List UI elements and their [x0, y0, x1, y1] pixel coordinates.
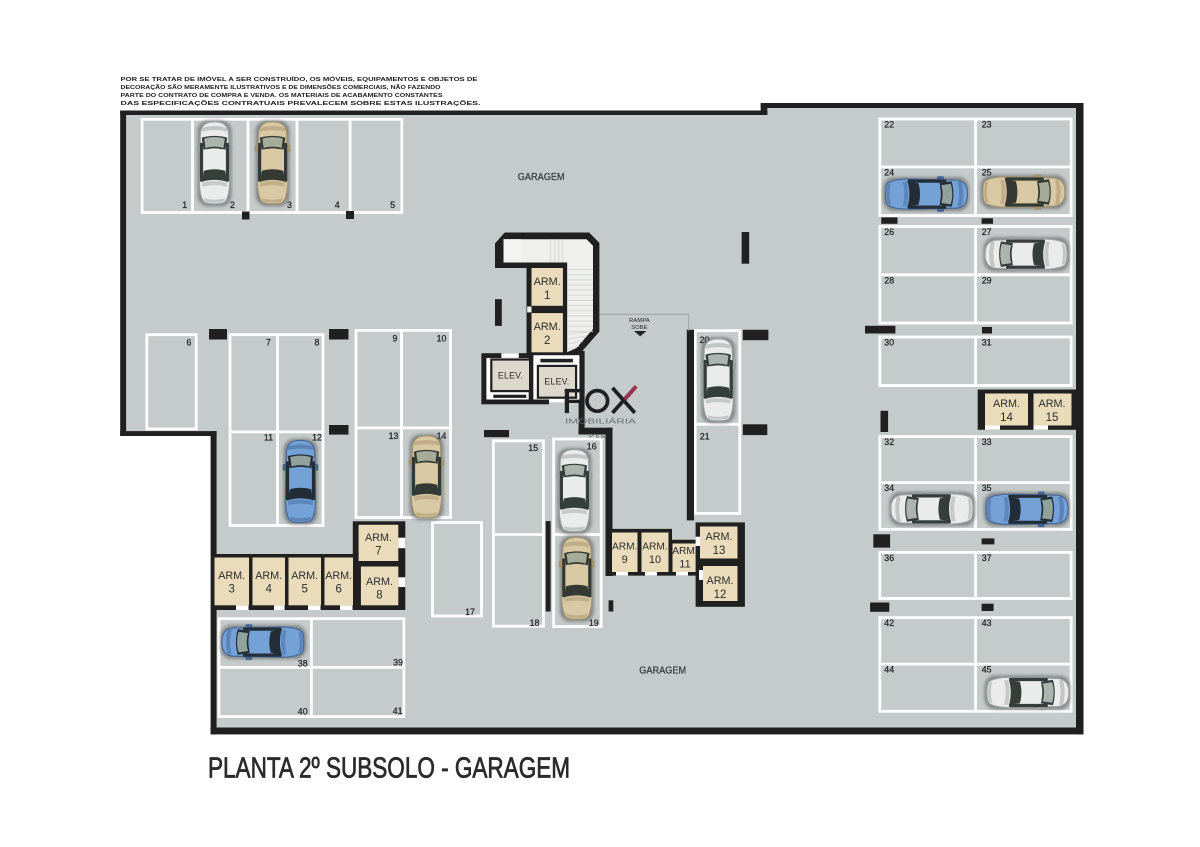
- svg-text:5: 5: [301, 584, 307, 596]
- svg-text:11: 11: [679, 559, 690, 571]
- svg-text:8: 8: [315, 338, 320, 348]
- svg-text:6: 6: [335, 584, 341, 596]
- svg-text:15: 15: [1046, 412, 1059, 424]
- svg-text:45: 45: [982, 665, 992, 675]
- svg-text:36: 36: [884, 553, 894, 563]
- svg-text:44: 44: [884, 665, 894, 675]
- svg-text:27: 27: [982, 227, 992, 237]
- svg-text:32: 32: [884, 437, 894, 447]
- svg-text:38: 38: [298, 658, 308, 668]
- svg-text:11: 11: [264, 432, 273, 442]
- svg-text:14: 14: [1000, 412, 1013, 424]
- svg-text:35: 35: [982, 483, 992, 493]
- svg-text:ARM.: ARM.: [642, 542, 667, 553]
- svg-text:GARAGEM: GARAGEM: [639, 664, 686, 676]
- svg-text:ARM.: ARM.: [365, 532, 392, 544]
- svg-text:ARM.: ARM.: [993, 398, 1020, 410]
- svg-text:ELEV.: ELEV.: [498, 370, 523, 380]
- svg-text:42: 42: [884, 618, 894, 628]
- svg-text:16: 16: [587, 441, 597, 451]
- svg-text:17: 17: [465, 607, 475, 617]
- svg-text:21: 21: [700, 431, 710, 441]
- svg-text:26: 26: [884, 227, 894, 237]
- svg-text:PLANTA 2º SUBSOLO - GARAGEM: PLANTA 2º SUBSOLO - GARAGEM: [208, 753, 570, 785]
- svg-text:12: 12: [714, 589, 727, 601]
- svg-text:ARM.: ARM.: [534, 276, 561, 288]
- svg-text:3: 3: [228, 584, 234, 596]
- svg-text:40: 40: [298, 707, 308, 717]
- svg-text:4: 4: [265, 584, 272, 596]
- svg-text:12: 12: [312, 432, 322, 442]
- svg-text:3: 3: [287, 200, 292, 210]
- svg-text:28: 28: [884, 275, 894, 285]
- svg-text:DECORAÇÃO SÃO MERAMENTE ILUSTR: DECORAÇÃO SÃO MERAMENTE ILUSTRATIVOS E D…: [121, 84, 441, 91]
- svg-text:31: 31: [982, 338, 992, 348]
- svg-text:ARM.: ARM.: [291, 570, 318, 582]
- svg-text:ARM.: ARM.: [706, 531, 733, 543]
- svg-text:2: 2: [544, 335, 550, 347]
- svg-text:ARM.: ARM.: [255, 570, 282, 582]
- svg-text:9: 9: [622, 554, 628, 566]
- svg-text:34: 34: [884, 483, 894, 493]
- svg-text:15: 15: [528, 443, 538, 453]
- svg-text:DAS ESPECIFICAÇÕES CONTRATUAIS: DAS ESPECIFICAÇÕES CONTRATUAIS PREVALECE…: [121, 100, 482, 107]
- svg-text:18: 18: [530, 618, 540, 628]
- svg-text:ARM.: ARM.: [366, 576, 393, 588]
- svg-text:37: 37: [982, 553, 992, 563]
- svg-text:IMOBILIÁRIA: IMOBILIÁRIA: [565, 416, 636, 425]
- svg-text:1: 1: [182, 200, 187, 210]
- svg-text:13: 13: [389, 431, 399, 441]
- svg-text:19: 19: [589, 618, 599, 628]
- svg-text:ARM.: ARM.: [1039, 398, 1066, 410]
- svg-text:RAMPA: RAMPA: [629, 318, 650, 324]
- svg-text:23: 23: [982, 120, 992, 130]
- svg-text:10: 10: [649, 554, 661, 566]
- svg-text:9: 9: [393, 334, 398, 344]
- svg-text:2: 2: [230, 200, 235, 210]
- svg-text:ARM.: ARM.: [707, 575, 734, 587]
- svg-text:13: 13: [713, 545, 726, 557]
- svg-text:ARM.: ARM.: [534, 321, 561, 333]
- svg-text:ARM.: ARM.: [612, 542, 637, 553]
- svg-text:24: 24: [884, 168, 894, 178]
- svg-text:SOBE: SOBE: [631, 325, 648, 331]
- svg-text:6: 6: [186, 338, 191, 348]
- svg-text:33: 33: [982, 437, 992, 447]
- svg-text:7: 7: [375, 546, 381, 558]
- svg-text:5: 5: [390, 200, 395, 210]
- svg-text:ARM.: ARM.: [218, 570, 245, 582]
- svg-text:10: 10: [437, 334, 447, 344]
- svg-text:1: 1: [544, 290, 550, 302]
- svg-text:39: 39: [393, 657, 403, 667]
- svg-text:4: 4: [335, 200, 340, 210]
- svg-text:22: 22: [884, 120, 894, 130]
- svg-text:PARTE DO CONTRATO DE COMPRA E: PARTE DO CONTRATO DE COMPRA E VENDA. OS …: [121, 93, 443, 99]
- svg-text:7: 7: [266, 338, 271, 348]
- svg-text:ELEV.: ELEV.: [544, 376, 569, 386]
- svg-text:ARM.: ARM.: [325, 570, 352, 582]
- svg-text:ARM.: ARM.: [672, 546, 697, 557]
- svg-text:GARAGEM: GARAGEM: [518, 171, 565, 183]
- svg-text:8: 8: [376, 590, 382, 602]
- svg-text:30: 30: [884, 338, 894, 348]
- svg-text:29: 29: [982, 275, 992, 285]
- svg-text:41: 41: [393, 706, 403, 716]
- svg-text:POR SE TRATAR DE IMÓVEL A SER: POR SE TRATAR DE IMÓVEL A SER CONSTRUÍDO…: [121, 75, 478, 83]
- svg-text:43: 43: [982, 618, 992, 628]
- svg-text:P: 6.50: P: 6.50: [589, 434, 606, 440]
